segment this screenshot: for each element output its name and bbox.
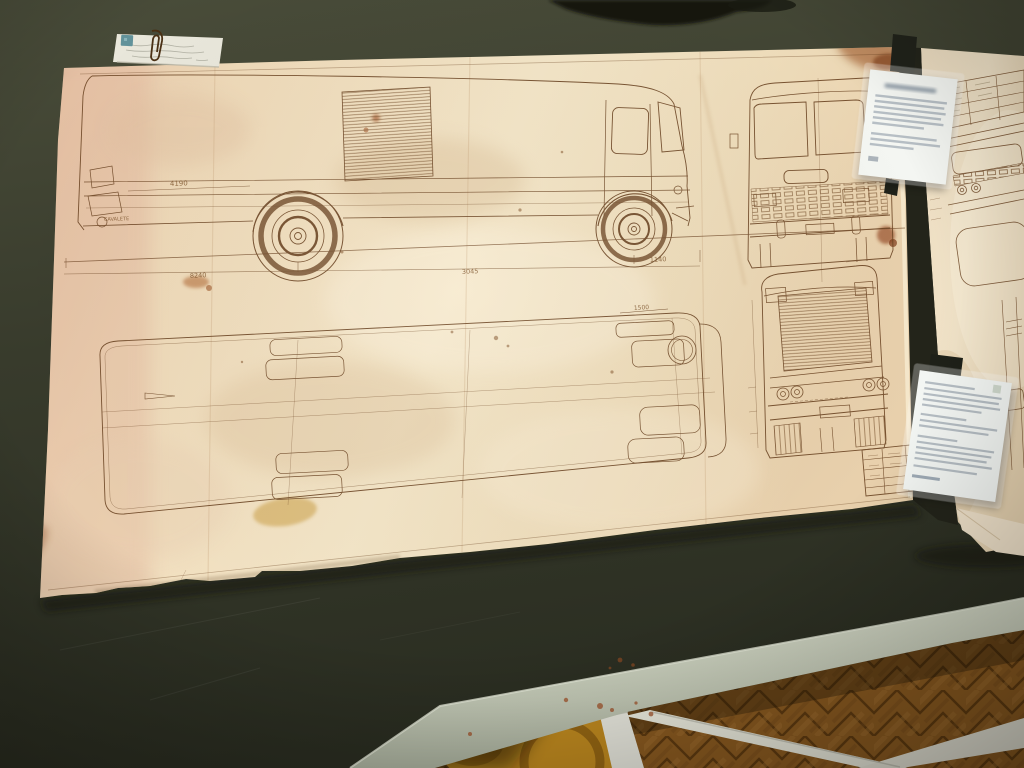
photo-vignette (0, 0, 1024, 768)
scene-svg: 4190 8240 3045 1140 1500 CAVALETE (0, 0, 1024, 768)
photo-scene: 4190 8240 3045 1140 1500 CAVALETE (0, 0, 1024, 768)
